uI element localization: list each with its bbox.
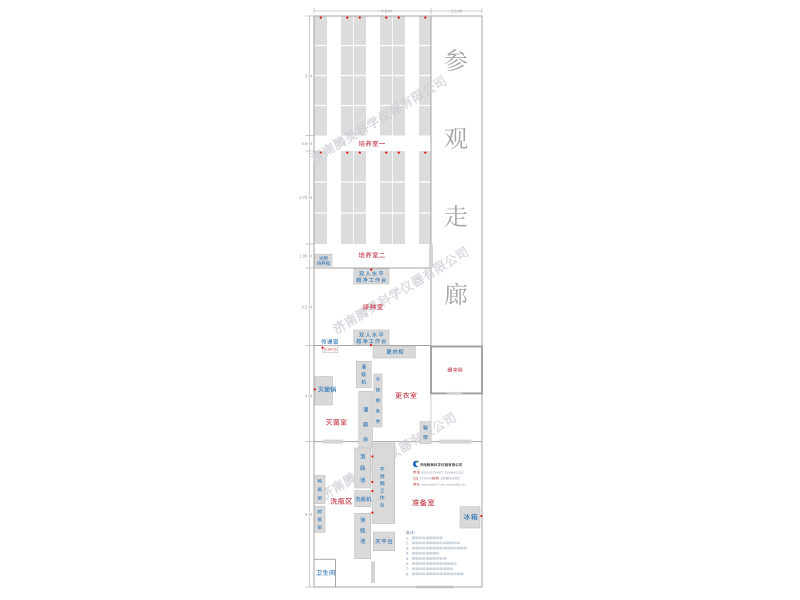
svg-text:4.: 4. xyxy=(406,552,409,556)
svg-text:7.: 7. xyxy=(406,567,409,571)
svg-text:5 M: 5 M xyxy=(305,73,312,78)
svg-text:3.75 M: 3.75 M xyxy=(299,195,312,200)
svg-text:6.: 6. xyxy=(406,562,409,566)
svg-text:1.05 M: 1.05 M xyxy=(299,254,312,259)
svg-text:4 M: 4 M xyxy=(305,394,312,399)
svg-text:8.: 8. xyxy=(406,572,409,576)
svg-text:2.: 2. xyxy=(406,541,409,545)
svg-text:3.: 3. xyxy=(406,547,409,551)
svg-text:4.8 M: 4.8 M xyxy=(381,9,392,14)
svg-text:1.: 1. xyxy=(406,536,409,540)
svg-text:0531-82799827, 15066411352: 0531-82799827, 15066411352 xyxy=(421,470,463,474)
svg-text:57437467: 57437467 xyxy=(420,477,434,481)
svg-text:6 M: 6 M xyxy=(305,512,312,517)
svg-text:15066411352: 15066411352 xyxy=(440,477,459,481)
svg-text:3.2 M: 3.2 M xyxy=(302,304,313,309)
svg-text:www.aype127.com, www.cn56j.com: www.aype127.com, www.cn56j.com xyxy=(421,483,466,487)
svg-text:5.: 5. xyxy=(406,557,409,561)
svg-text:0.6 M: 0.6 M xyxy=(302,141,313,146)
svg-text:2.1 M: 2.1 M xyxy=(451,9,462,14)
svg-text:(0.6x0.6): (0.6x0.6) xyxy=(324,348,337,352)
